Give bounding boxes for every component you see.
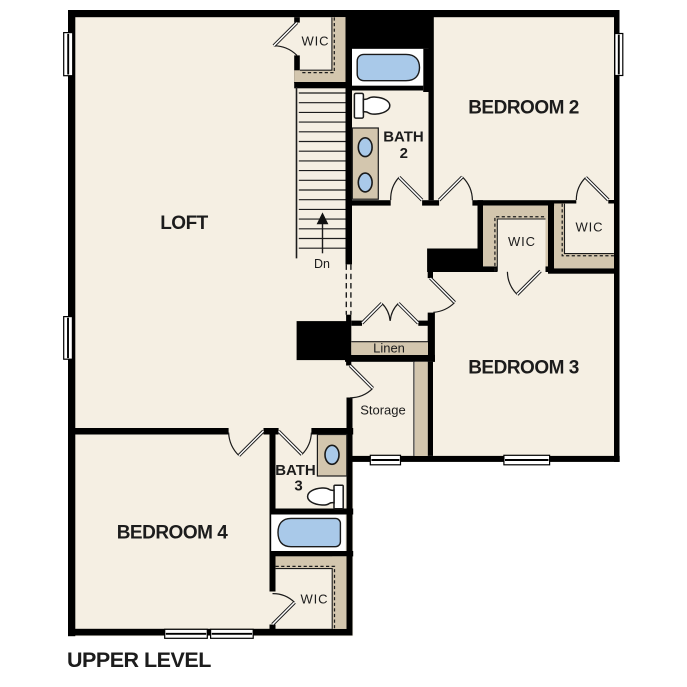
svg-text:3: 3 (294, 478, 302, 495)
svg-text:Linen: Linen (373, 340, 405, 355)
svg-text:Storage: Storage (360, 403, 406, 418)
svg-text:LOFT: LOFT (160, 213, 208, 234)
svg-text:WIC: WIC (302, 33, 330, 48)
svg-text:UPPER LEVEL: UPPER LEVEL (67, 648, 211, 672)
svg-text:Dn: Dn (314, 257, 330, 271)
svg-text:WIC: WIC (301, 591, 329, 606)
svg-text:BATH: BATH (383, 128, 424, 145)
svg-text:2: 2 (400, 145, 408, 162)
svg-text:BEDROOM 2: BEDROOM 2 (468, 97, 579, 118)
svg-text:BEDROOM 4: BEDROOM 4 (117, 522, 229, 543)
svg-text:BEDROOM 3: BEDROOM 3 (468, 358, 579, 379)
svg-text:WIC: WIC (576, 219, 604, 234)
svg-text:WIC: WIC (508, 234, 536, 249)
svg-text:BATH: BATH (275, 462, 316, 479)
